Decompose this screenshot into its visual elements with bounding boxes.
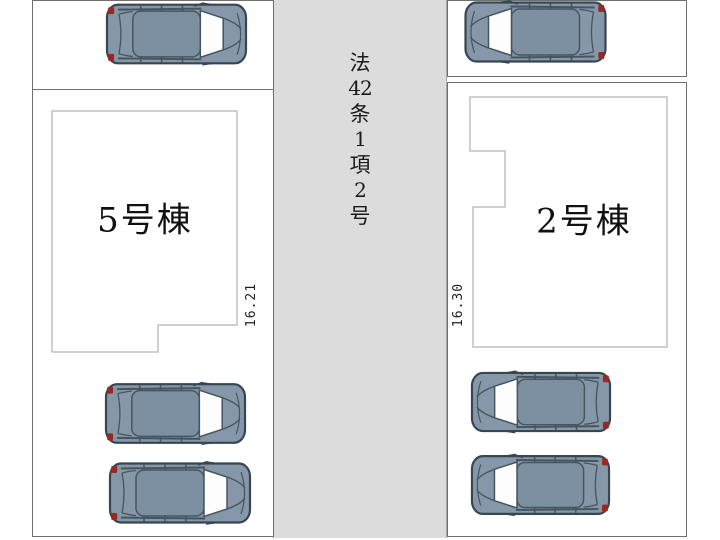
car-icon bbox=[104, 381, 247, 446]
site-plan: 5号棟 2号棟 16.21 16.30 法 42 条 1 項 2 号 bbox=[0, 0, 720, 540]
left-lot-parking-divider bbox=[32, 89, 274, 90]
car-icon bbox=[463, 0, 608, 64]
road-label-char: 2 bbox=[273, 178, 447, 203]
car-icon bbox=[108, 461, 252, 525]
road-label-char: 42 bbox=[273, 76, 447, 101]
road-label-char: 法 bbox=[273, 50, 447, 76]
car-icon bbox=[470, 369, 612, 435]
road-label-char: 項 bbox=[273, 152, 447, 178]
road-label-char: 号 bbox=[273, 203, 447, 229]
road-label-char: 1 bbox=[273, 127, 447, 152]
left-lot-frontage-dimension: 16.21 bbox=[245, 275, 259, 335]
car-icon bbox=[470, 453, 611, 517]
road-designation-label: 法 42 条 1 項 2 号 bbox=[273, 50, 447, 229]
right-lot-frontage-dimension: 16.30 bbox=[452, 275, 466, 335]
building-2-label: 2号棟 bbox=[536, 194, 632, 243]
road-label-char: 条 bbox=[273, 101, 447, 127]
left-lot-boundary bbox=[32, 0, 274, 537]
car-icon bbox=[105, 2, 248, 66]
building-5-label: 5号棟 bbox=[97, 193, 193, 242]
